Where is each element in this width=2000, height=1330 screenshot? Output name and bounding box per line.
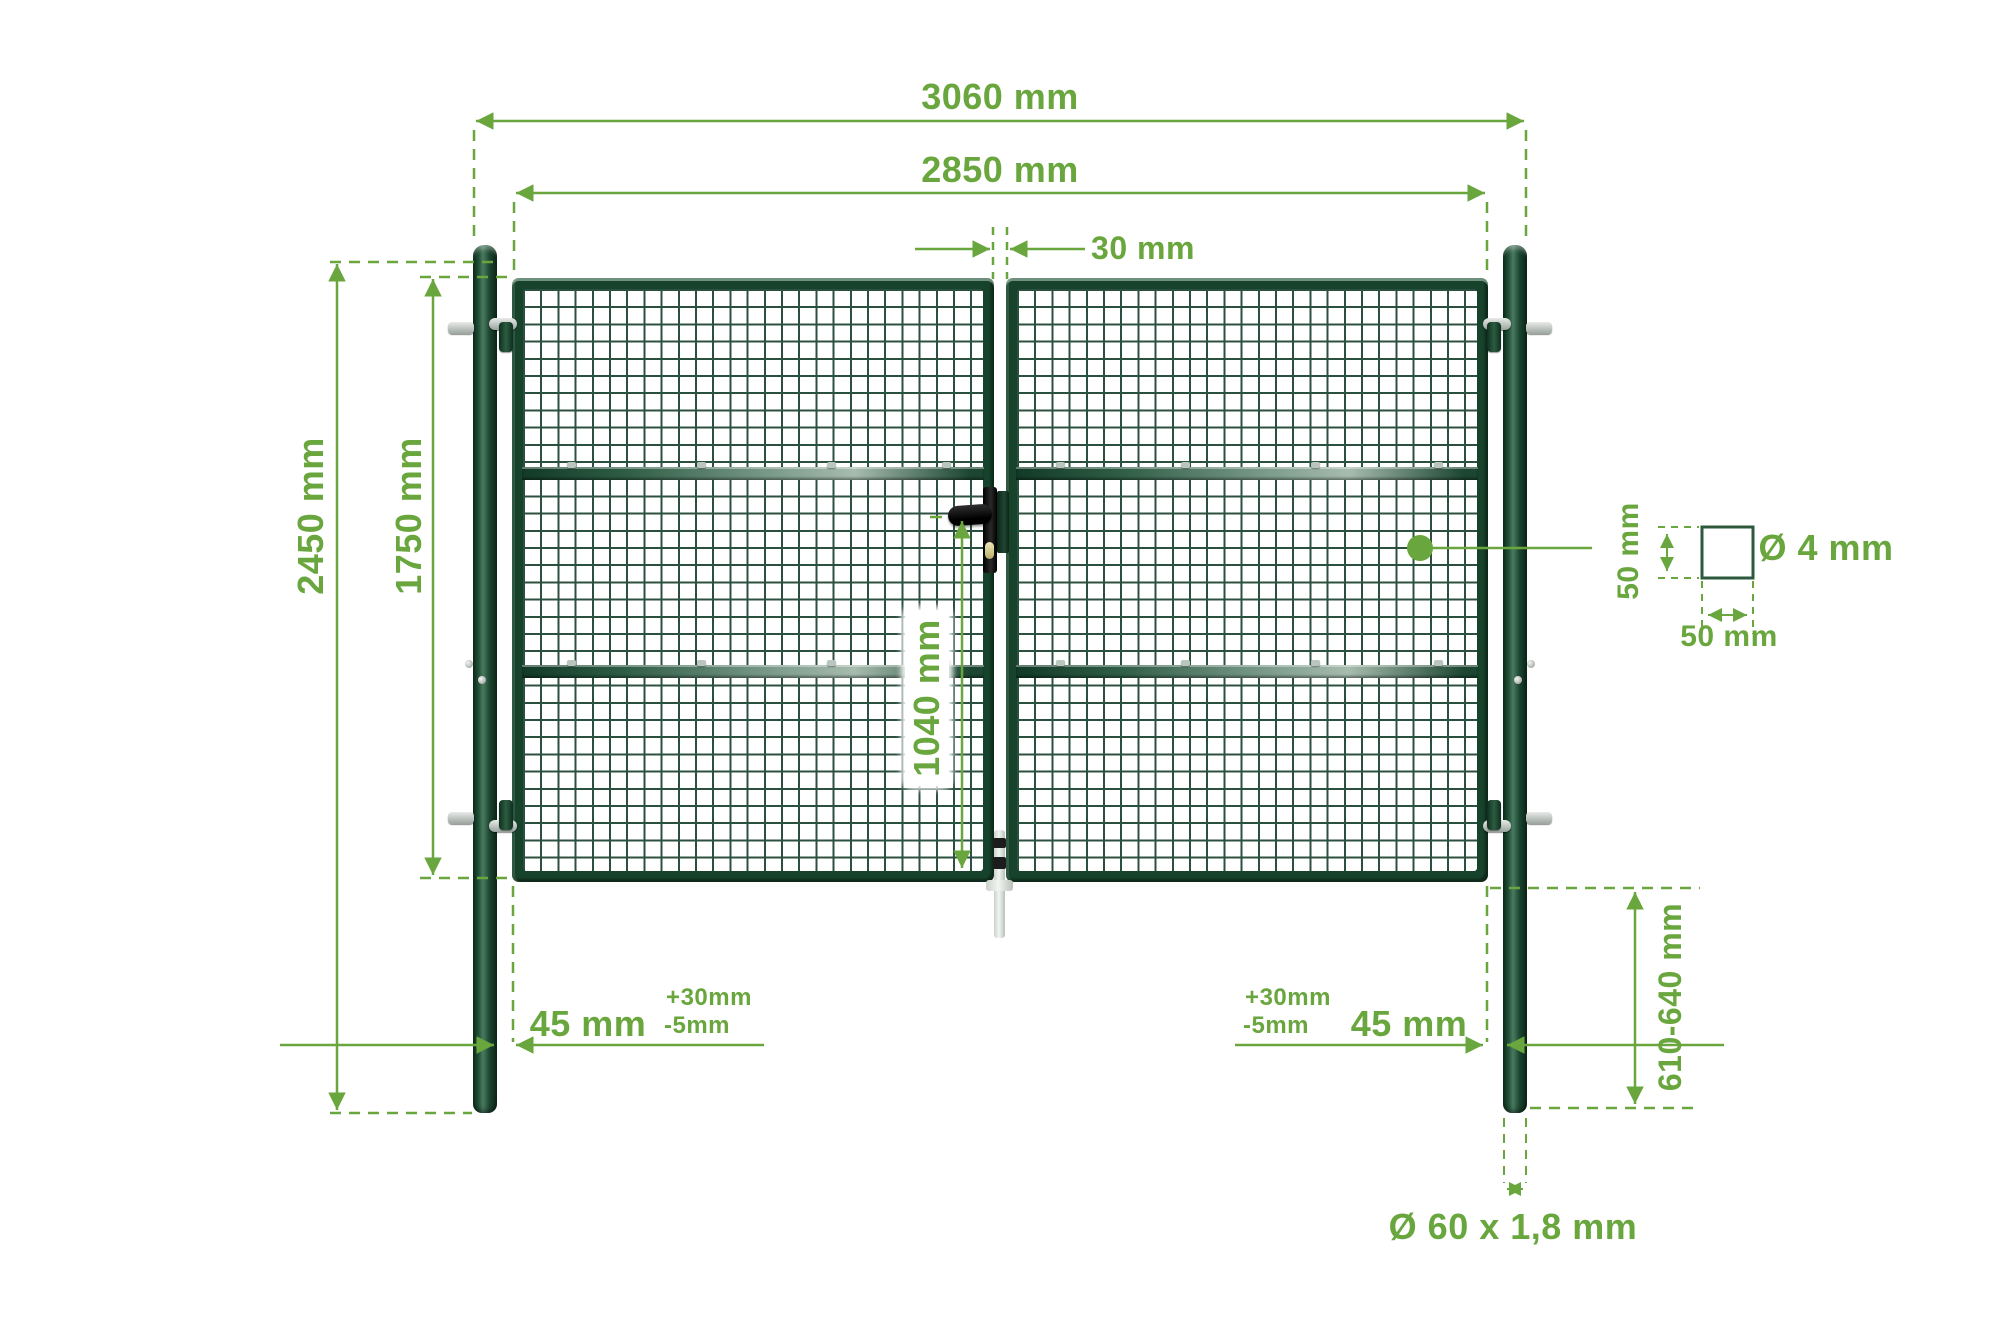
dim-wing-gap — [915, 227, 1085, 279]
gate-width-label: 2850 mm — [921, 152, 1079, 188]
dim-post-tube — [1504, 1118, 1526, 1189]
overall-width-label: 3060 mm — [921, 79, 1079, 115]
gate-dimension-diagram: 3060 mm 2850 mm 30 mm 2450 mm 1750 mm 10… — [0, 0, 2000, 1330]
dim-gate-width — [514, 193, 1487, 274]
post-tube-label: Ø 60 x 1,8 mm — [1389, 1209, 1638, 1245]
dim-post-height — [330, 262, 500, 1113]
left-tolerance-minus-label: -5mm — [664, 1014, 730, 1038]
mesh-detail-square — [1658, 527, 1753, 634]
mesh-cell-height-label: 50 mm — [1614, 502, 1644, 600]
left-tolerance-plus-label: +30mm — [666, 986, 752, 1010]
wing-gap-label: 30 mm — [1091, 232, 1195, 264]
dimension-lines-layer — [0, 0, 2000, 1330]
wire-diameter-label: Ø 4 mm — [1758, 530, 1893, 566]
right-tolerance-plus-label: +30mm — [1245, 986, 1331, 1010]
post-height-label: 2450 mm — [293, 437, 329, 595]
wing-height-label: 1750 mm — [391, 437, 427, 595]
mesh-cell-width-label: 50 mm — [1680, 622, 1778, 652]
right-tolerance-minus-label: -5mm — [1243, 1014, 1309, 1038]
mesh-detail-callout — [1407, 535, 1592, 561]
lock-to-bottom-label: 1040 mm — [909, 619, 945, 777]
ground-embed-label: 610-640 mm — [1654, 903, 1686, 1091]
left-gap-45-label: 45 mm — [530, 1006, 647, 1042]
dim-wing-height — [420, 277, 513, 878]
right-gap-45-label: 45 mm — [1351, 1006, 1468, 1042]
